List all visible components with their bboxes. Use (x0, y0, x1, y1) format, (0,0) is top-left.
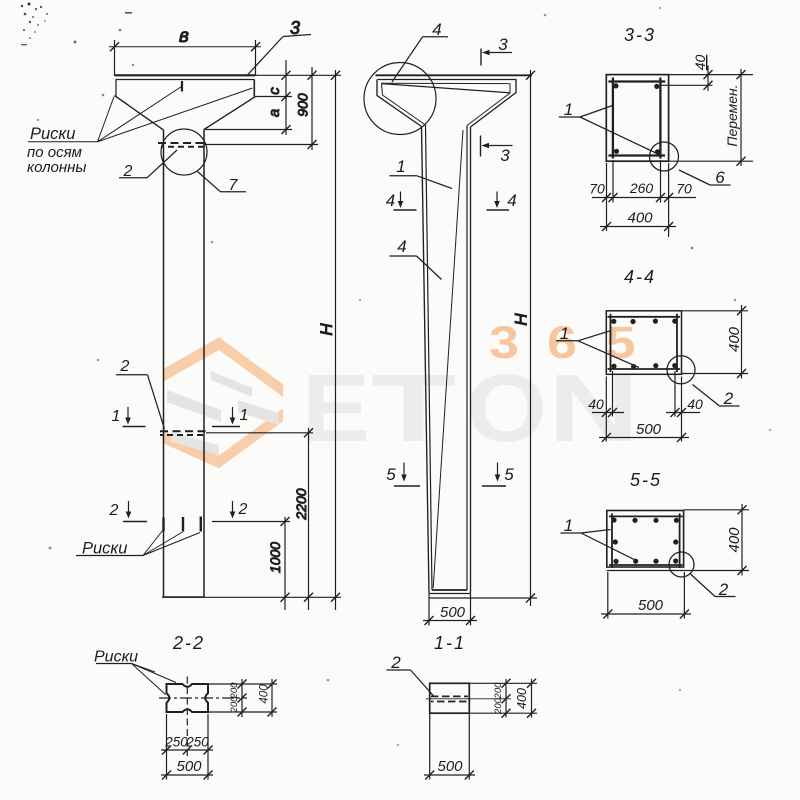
svg-text:4: 4 (397, 237, 406, 256)
svg-text:1: 1 (396, 157, 405, 176)
svg-text:2: 2 (723, 389, 734, 408)
svg-text:2: 2 (109, 502, 119, 519)
svg-text:40: 40 (687, 396, 703, 412)
svg-text:40: 40 (588, 396, 604, 412)
svg-text:400: 400 (627, 210, 653, 227)
svg-text:Риски: Риски (30, 125, 75, 143)
svg-text:4: 4 (432, 20, 441, 39)
svg-text:400: 400 (515, 688, 529, 709)
svg-text:Н: Н (512, 313, 531, 326)
svg-text:1: 1 (112, 408, 121, 425)
svg-text:6: 6 (715, 168, 725, 187)
svg-text:260: 260 (629, 180, 654, 196)
svg-text:40: 40 (692, 55, 708, 71)
svg-text:500: 500 (638, 597, 664, 614)
svg-text:1000: 1000 (267, 542, 283, 573)
svg-text:2: 2 (238, 501, 248, 518)
svg-text:5: 5 (504, 465, 514, 484)
svg-text:200: 200 (493, 682, 504, 700)
svg-text:70: 70 (589, 181, 605, 197)
svg-text:2200: 2200 (293, 488, 309, 520)
svg-text:4-4: 4-4 (624, 267, 656, 287)
svg-text:250: 250 (164, 735, 188, 750)
svg-text:T: T (371, 355, 456, 462)
svg-text:4: 4 (507, 191, 516, 210)
svg-text:2: 2 (120, 358, 130, 375)
svg-text:1: 1 (560, 324, 569, 343)
svg-text:2-2: 2-2 (172, 633, 205, 653)
svg-text:200: 200 (493, 697, 504, 715)
svg-text:2: 2 (390, 653, 401, 672)
svg-text:а: а (266, 109, 283, 117)
svg-text:с: с (266, 87, 283, 95)
svg-text:5-5: 5-5 (630, 470, 662, 490)
svg-text:3-3: 3-3 (624, 25, 656, 45)
svg-text:5: 5 (386, 465, 396, 484)
svg-text:400: 400 (726, 527, 743, 553)
svg-text:500: 500 (437, 758, 463, 775)
svg-text:400: 400 (259, 684, 271, 704)
svg-text:1-1: 1-1 (434, 633, 466, 653)
svg-text:3: 3 (500, 146, 510, 165)
svg-text:250: 250 (185, 735, 209, 750)
svg-text:в: в (179, 26, 189, 47)
svg-text:900: 900 (295, 93, 311, 117)
svg-text:1: 1 (240, 407, 249, 424)
svg-text:Перемен.: Перемен. (724, 84, 740, 146)
svg-text:O: O (466, 355, 547, 462)
svg-text:200: 200 (229, 696, 240, 714)
svg-text:1: 1 (564, 516, 573, 535)
svg-text:3: 3 (498, 35, 508, 54)
svg-text:70: 70 (676, 181, 692, 197)
svg-text:Риски: Риски (82, 540, 127, 558)
svg-text:500: 500 (636, 421, 662, 438)
svg-text:4: 4 (386, 191, 395, 210)
svg-text:500: 500 (440, 604, 466, 621)
svg-text:Н: Н (317, 323, 336, 336)
svg-text:400: 400 (726, 326, 743, 352)
svg-text:колонны: колонны (27, 159, 86, 176)
svg-text:500: 500 (176, 758, 202, 775)
svg-text:1: 1 (564, 100, 573, 119)
